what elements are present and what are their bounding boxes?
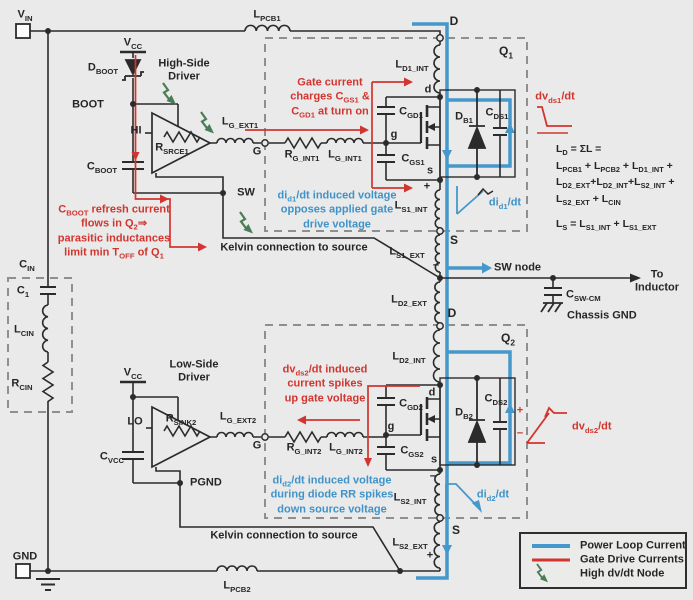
label-plus-cds2: +	[517, 405, 523, 418]
legend-label-high-dvdt: High dv/dt Node	[580, 568, 664, 581]
waveform-dvds1	[537, 107, 572, 133]
label-wf-did2: did2/dt	[477, 489, 509, 502]
r-g-int2	[285, 432, 321, 442]
high-dvdt-arrow-3	[240, 212, 253, 234]
l-g-ext1	[217, 139, 253, 144]
label-ls1int: LS1_INT	[395, 200, 428, 213]
label-to-inductor: ToInductor	[635, 268, 679, 293]
label-rgint1: RG_INT1	[285, 149, 320, 162]
label-q1: Q1	[499, 45, 513, 59]
label-minus-cds2: −	[517, 428, 523, 441]
annotation-cboot-refresh: CBOOT refresh currentflows in Q2⇒parasit…	[58, 202, 171, 259]
label-boot: BOOT	[72, 99, 104, 112]
gate-drive-schematic: VIN LPCB1 VCC DBOOT High-SideDriver BOOT…	[0, 0, 693, 600]
label-minus-q2: −	[430, 471, 436, 484]
label-ld2ext: LD2_EXT	[391, 294, 427, 307]
waveform-did1	[457, 186, 493, 214]
label-s-node-q1: S	[450, 234, 458, 248]
c-gd2	[377, 398, 395, 405]
label-chassis-gnd: Chassis GND	[567, 310, 637, 323]
l-cin	[43, 305, 48, 352]
label-ls2ext: LS2_EXT	[392, 537, 427, 550]
label-rsrce1: RSRCE1	[155, 142, 189, 155]
label-rcin: RCIN	[11, 378, 32, 391]
l-s1-int	[435, 190, 440, 228]
label-ls1ext: LS1_EXT	[389, 246, 424, 259]
c-sw-cm	[544, 288, 562, 295]
l-g-int1	[327, 139, 363, 144]
l-g-int2	[327, 433, 363, 438]
l-s2-ext	[434, 522, 440, 568]
label-cvcc: CVCC	[100, 451, 124, 464]
label-cds2: CDS2	[485, 393, 508, 406]
legend-label-power-loop: Power Loop Current	[580, 540, 686, 553]
label-lgext2: LG_EXT2	[220, 411, 256, 424]
l-d1-int	[434, 45, 440, 93]
c-boot	[122, 162, 144, 169]
label-hi: HI	[131, 125, 142, 138]
hs-gate-split-path	[372, 82, 404, 188]
label-q2-d: d	[429, 387, 436, 400]
label-wf-did1: did1/dt	[489, 197, 521, 210]
label-sw: SW	[237, 187, 255, 200]
c-gs2	[377, 447, 395, 454]
label-plus-q1: +	[424, 181, 430, 194]
label-lo: LO	[127, 416, 142, 429]
l-pcb2	[217, 566, 257, 571]
c-ds1	[493, 128, 507, 135]
label-cgd2: CGD2	[399, 398, 423, 411]
label-vin: VIN	[17, 9, 32, 22]
label-ld1int: LD1_INT	[395, 59, 428, 72]
label-cin: CIN	[19, 259, 35, 272]
vin-terminal	[16, 24, 30, 38]
annotation-gate-charge: Gate currentcharges CGS1 &CGD1 at turn o…	[290, 76, 370, 119]
high-dvdt-arrow-1	[163, 83, 176, 105]
c-gs1	[377, 155, 395, 162]
d-b1-diode	[469, 90, 485, 177]
label-d-node-top: D	[450, 15, 459, 29]
label-plus-q2: +	[427, 550, 433, 563]
high-dvdt-arrow-2	[201, 112, 214, 134]
equation-ls: LS = LS1_INT + LS1_EXT	[556, 216, 656, 233]
resistors	[43, 132, 321, 442]
c-vcc	[122, 452, 144, 459]
label-sw-node: SW node	[494, 262, 541, 275]
label-ld2int: LD2_INT	[392, 351, 425, 364]
label-q2-s: s	[431, 454, 437, 467]
bottom-rail	[30, 568, 440, 571]
label-ls2int: LS2_INT	[394, 492, 427, 505]
c-gd1	[377, 107, 395, 114]
label-gnd: GND	[13, 551, 37, 564]
label-kelvin-top: Kelvin connection to source	[220, 242, 367, 255]
label-pgnd: PGND	[190, 477, 222, 490]
label-cgs1: CGS1	[401, 153, 424, 166]
label-wf-dvds1: dvds1/dt	[535, 91, 575, 104]
annotation-dvds2: dvds2/dt inducedcurrent spikesup gate vo…	[283, 363, 368, 406]
label-kelvin-bottom: Kelvin connection to source	[210, 530, 357, 543]
label-q1-d: d	[425, 84, 432, 97]
label-minus-q1: −	[433, 260, 439, 273]
l-d2-int	[434, 330, 441, 382]
label-q1-s: s	[427, 165, 433, 178]
terminals	[16, 24, 30, 578]
label-lgext1: LG_EXT1	[222, 116, 258, 129]
label-cgd1: CGD1	[399, 106, 423, 119]
chassis-gnd-symbol	[541, 303, 563, 312]
label-g-ls: G	[253, 440, 262, 453]
r-g-int1	[285, 138, 321, 148]
label-vcc-ls: VCC	[124, 367, 142, 380]
label-db1: DB1	[455, 111, 473, 124]
label-hs-driver: High-SideDriver	[158, 57, 209, 82]
label-rgint2: RG_INT2	[287, 442, 322, 455]
label-c1: C1	[17, 285, 29, 298]
label-dboot: DBOOT	[88, 62, 118, 75]
gnd-terminal	[16, 564, 30, 578]
label-q2: Q2	[501, 332, 515, 346]
top-rail	[30, 31, 440, 35]
l-pcb1	[245, 25, 290, 31]
label-lpcb1: LPCB1	[253, 9, 280, 22]
label-s-node-q2: S	[452, 524, 460, 538]
label-cboot: CBOOT	[87, 161, 117, 174]
label-db2: DB2	[455, 407, 473, 420]
legend-label-gate-drive: Gate Drive Currents	[580, 554, 684, 567]
c-ds2	[493, 422, 507, 429]
l-d2-ext	[435, 282, 440, 323]
gnd-symbol	[36, 579, 60, 590]
label-wf-dvds2: dvds2/dt	[572, 421, 612, 434]
driver1-return	[156, 173, 223, 193]
label-lgint1: LG_INT1	[328, 149, 362, 162]
label-rsink2: RSINK2	[166, 413, 197, 426]
label-ls-driver: Low-SideDriver	[170, 358, 219, 383]
label-lcin: LCIN	[14, 324, 34, 337]
label-vcc-hs: VCC	[124, 37, 142, 50]
r-cin	[43, 362, 53, 402]
d-boot-diode	[122, 60, 144, 80]
waveform-dvds2	[527, 408, 567, 443]
driver2-return	[156, 467, 180, 483]
label-lpcb2: LPCB2	[223, 580, 250, 593]
equation-ld: LD = ΣL =LPCB1 + LPCB2 + LD1_INT +LD2_EX…	[556, 141, 675, 207]
label-cgs2: CGS2	[400, 445, 423, 458]
label-d-node-mid: D	[448, 307, 457, 321]
label-lgint2: LG_INT2	[329, 442, 363, 455]
annotation-did1: did1/dt induced voltageopposes applied g…	[278, 189, 397, 232]
label-cds1: CDS1	[486, 107, 509, 120]
label-q1-g: g	[391, 129, 398, 142]
label-q2-g: g	[388, 421, 395, 434]
l-g-ext2	[217, 433, 253, 438]
label-g-hs: G	[253, 146, 262, 159]
d-b2-diode	[469, 378, 485, 465]
c-1	[40, 287, 56, 294]
annotation-did2: did2/dt induced voltageduring diode RR s…	[271, 474, 394, 517]
label-cswcm: CSW-CM	[566, 289, 601, 302]
cin-box	[8, 278, 72, 412]
